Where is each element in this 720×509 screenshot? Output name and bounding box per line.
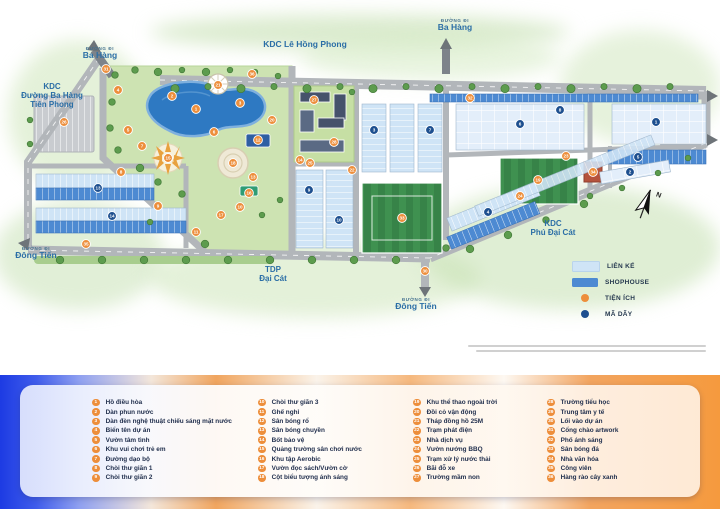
svg-text:34: 34 bbox=[590, 170, 596, 175]
utility-marker: 36 bbox=[248, 70, 257, 79]
amenity-label: Đồi cỏ vận động bbox=[427, 409, 477, 416]
tree-icon bbox=[179, 67, 185, 73]
amenity-item: 21Tháp đồng hồ 25M bbox=[413, 417, 497, 426]
svg-text:N: N bbox=[655, 191, 662, 199]
svg-text:18: 18 bbox=[230, 161, 236, 166]
row-code-marker: 1 bbox=[652, 118, 661, 127]
amenity-column: 1Hồ điều hòa2Dàn phun nước3Dàn đèn nghệ … bbox=[92, 398, 232, 483]
amenity-number-badge: 24 bbox=[413, 446, 421, 454]
amenity-label: Hàng rào cây xanh bbox=[561, 474, 618, 481]
amenity-label: Đường dạo bộ bbox=[106, 456, 150, 463]
row-code-marker: 7 bbox=[426, 126, 435, 135]
amenity-item: 28Trường tiểu học bbox=[547, 398, 618, 407]
amenity-number-badge: 34 bbox=[547, 455, 555, 463]
amenity-number-badge: 6 bbox=[92, 446, 100, 454]
amenity-label: Sân bóng rổ bbox=[272, 418, 309, 425]
amenity-item: 12Sân bóng rổ bbox=[258, 417, 362, 426]
svg-text:9: 9 bbox=[157, 204, 160, 209]
svg-text:16: 16 bbox=[246, 191, 252, 196]
amenity-label: Chòi thư giãn 2 bbox=[106, 474, 153, 481]
amenity-item: 6Khu vui chơi trẻ em bbox=[92, 445, 232, 454]
amenity-number-badge: 31 bbox=[547, 427, 555, 435]
amenity-number-badge: 1 bbox=[92, 399, 100, 407]
utility-marker: 21 bbox=[214, 81, 223, 90]
utility-marker: 2 bbox=[168, 92, 177, 101]
tree-icon bbox=[179, 191, 186, 198]
row-code-marker: 4 bbox=[484, 208, 493, 217]
tree-icon bbox=[633, 85, 641, 93]
svg-text:13: 13 bbox=[250, 175, 256, 180]
svg-text:22: 22 bbox=[349, 168, 355, 173]
tree-icon bbox=[580, 200, 588, 208]
label-ba-hang-top-left: ĐƯỜNG ĐI Ba Hàng bbox=[83, 46, 117, 61]
svg-text:3: 3 bbox=[239, 101, 242, 106]
tree-icon bbox=[403, 84, 409, 90]
amenity-number-badge: 11 bbox=[258, 408, 266, 416]
amenity-number-badge: 21 bbox=[413, 418, 421, 426]
plan-legend: LIÊN KẾ SHOPHOUSE TIỆN ÍCH MÃ DÃY bbox=[572, 258, 712, 322]
label-tdp-dai-cat: TDP Đại Cát bbox=[259, 265, 287, 283]
amenity-item: 10Chòi thư giãn 3 bbox=[258, 398, 362, 407]
amenity-label: Chòi thư giãn 3 bbox=[272, 399, 319, 406]
label-kdc-tien-phong: KDC Đường Ba Hàng Tiên Phong bbox=[21, 82, 83, 110]
amenity-item: 23Nhà dịch vụ bbox=[413, 436, 497, 445]
amenity-item: 30Lối vào dự án bbox=[547, 417, 618, 426]
tree-icon bbox=[98, 256, 106, 264]
tree-icon bbox=[107, 125, 114, 132]
utility-marker: 19 bbox=[534, 176, 543, 185]
tree-icon bbox=[501, 85, 509, 93]
amenity-item: 35Công viên bbox=[547, 464, 618, 473]
amenity-number-badge: 17 bbox=[258, 465, 266, 473]
amenity-item: 17Vườn đọc sách/Vườn cờ bbox=[258, 464, 362, 473]
legend-tien-ich: TIỆN ÍCH bbox=[572, 290, 712, 306]
amenity-item: 2Dàn phun nước bbox=[92, 407, 232, 416]
utility-marker: 3 bbox=[236, 99, 245, 108]
tree-icon bbox=[443, 245, 450, 252]
legend-ma-day: MÃ DÃY bbox=[572, 306, 712, 322]
amenity-item: 15Quảng trường sân chơi nước bbox=[258, 445, 362, 454]
amenity-number-badge: 36 bbox=[547, 474, 555, 482]
amenity-label: Vườn tâm tình bbox=[106, 437, 150, 444]
amenity-item: 5Vườn tâm tình bbox=[92, 436, 232, 445]
svg-text:27: 27 bbox=[311, 98, 317, 103]
amenity-label: Cột biểu tượng ánh sáng bbox=[272, 474, 348, 481]
shophouse-swatch bbox=[572, 278, 598, 287]
tree-icon bbox=[132, 67, 139, 74]
amenity-item: 32Phố ánh sáng bbox=[547, 436, 618, 445]
amenity-number-badge: 18 bbox=[258, 474, 266, 482]
amenity-label: Trung tâm y tế bbox=[561, 409, 605, 416]
row-code-marker: 5 bbox=[634, 153, 643, 162]
svg-text:23: 23 bbox=[563, 154, 569, 159]
svg-text:7: 7 bbox=[429, 128, 432, 133]
amenity-item: 19Khu thể thao ngoài trời bbox=[413, 398, 497, 407]
amenity-item: 29Trung tâm y tế bbox=[547, 407, 618, 416]
tree-icon bbox=[308, 256, 316, 264]
amenity-label: Trạm phát điện bbox=[427, 427, 472, 434]
row-code-marker: 10 bbox=[335, 216, 344, 225]
tree-icon bbox=[201, 240, 209, 248]
label-dong-tien-bottom: ĐƯỜNG ĐI Đông Tiến bbox=[395, 297, 436, 312]
amenity-number-badge: 19 bbox=[413, 399, 421, 407]
amenity-item: 27Trường mầm non bbox=[413, 473, 497, 482]
label-kdc-le-hong-phong: KDC Lê Hồng Phong bbox=[263, 40, 347, 50]
amenity-item: 18Cột biểu tượng ánh sáng bbox=[258, 473, 362, 482]
utility-marker: 5 bbox=[124, 126, 133, 135]
amenity-number-badge: 29 bbox=[547, 408, 555, 416]
tree-icon bbox=[567, 85, 575, 93]
tree-icon bbox=[266, 256, 274, 264]
utility-marker: 22 bbox=[348, 166, 357, 175]
svg-text:6: 6 bbox=[213, 130, 216, 135]
utility-marker: 10 bbox=[236, 203, 245, 212]
amenity-label: Nhà văn hóa bbox=[561, 456, 599, 463]
amenity-label: Trường mầm non bbox=[427, 474, 480, 481]
tree-icon bbox=[655, 170, 661, 176]
park-strip bbox=[34, 256, 274, 264]
amenity-label: Sân bóng đá bbox=[561, 446, 599, 453]
svg-text:26: 26 bbox=[61, 120, 67, 125]
legend-label: LIÊN KẾ bbox=[607, 263, 635, 270]
legend-shophouse: SHOPHOUSE bbox=[572, 274, 712, 290]
bottom-gradient-band: 1Hồ điều hòa2Dàn phun nước3Dàn đèn nghệ … bbox=[0, 375, 720, 509]
amenity-label: Khu vui chơi trẻ em bbox=[106, 446, 166, 453]
amenity-label: Hồ điều hòa bbox=[106, 399, 143, 406]
row-code-marker: 13 bbox=[94, 184, 103, 193]
amenity-number-badge: 27 bbox=[413, 474, 421, 482]
tree-icon bbox=[155, 179, 162, 186]
svg-text:10: 10 bbox=[336, 218, 342, 223]
amenity-item: 3Dàn đèn nghệ thuật chiếu sáng mặt nước bbox=[92, 417, 232, 426]
amenity-number-badge: 35 bbox=[547, 465, 555, 473]
tree-icon bbox=[601, 84, 607, 90]
legend-label: TIỆN ÍCH bbox=[605, 295, 635, 302]
tree-icon bbox=[667, 84, 673, 90]
utility-marker: 12 bbox=[254, 136, 263, 145]
tree-icon bbox=[504, 231, 512, 239]
svg-text:25: 25 bbox=[307, 161, 313, 166]
tree-icon bbox=[535, 84, 541, 90]
svg-text:8: 8 bbox=[120, 170, 123, 175]
amenity-number-badge: 16 bbox=[258, 455, 266, 463]
utility-marker: 1 bbox=[192, 105, 201, 114]
amenity-label: Khu thể thao ngoài trời bbox=[427, 399, 498, 406]
amenity-label: Chòi thư giãn 1 bbox=[106, 465, 153, 472]
svg-text:15: 15 bbox=[165, 156, 171, 161]
tree-icon bbox=[205, 84, 211, 90]
svg-text:33: 33 bbox=[399, 216, 405, 221]
amenity-number-badge: 9 bbox=[92, 474, 100, 482]
row-code-dot-icon bbox=[581, 310, 589, 318]
amenity-item: 8Chòi thư giãn 1 bbox=[92, 464, 232, 473]
tree-icon bbox=[619, 185, 625, 191]
tree-icon bbox=[56, 256, 64, 264]
svg-text:1: 1 bbox=[655, 120, 658, 125]
tree-icon bbox=[224, 256, 232, 264]
lien-ke-swatch bbox=[572, 261, 600, 272]
amenity-label: Nhà dịch vụ bbox=[427, 437, 463, 444]
tree-icon bbox=[587, 193, 593, 199]
utility-marker: 33 bbox=[398, 214, 407, 223]
amenity-item: 16Khu tập Aerobic bbox=[258, 454, 362, 463]
amenity-number-badge: 26 bbox=[413, 465, 421, 473]
tree-icon bbox=[685, 155, 691, 161]
amenity-column: 10Chòi thư giãn 311Ghế nghỉ12Sân bóng rổ… bbox=[258, 398, 362, 483]
amenity-number-badge: 14 bbox=[258, 436, 266, 444]
tree-icon bbox=[271, 84, 277, 90]
tree-icon bbox=[112, 72, 119, 79]
legend-lien-ke: LIÊN KẾ bbox=[572, 258, 712, 274]
amenity-label: Vườn đọc sách/Vườn cờ bbox=[272, 465, 348, 472]
amenity-item: 36Hàng rào cây xanh bbox=[547, 473, 618, 482]
row-code-marker: 14 bbox=[108, 212, 117, 221]
tree-icon bbox=[182, 256, 190, 264]
svg-text:35: 35 bbox=[83, 242, 89, 247]
amenity-label: Cổng chào artwork bbox=[561, 427, 619, 434]
amenity-label: Bãi đỗ xe bbox=[427, 465, 455, 472]
compass-icon: N bbox=[634, 187, 663, 223]
tree-icon bbox=[350, 256, 358, 264]
utility-marker: 25 bbox=[306, 159, 315, 168]
utility-marker: 7 bbox=[138, 142, 147, 151]
amenity-item: 31Cổng chào artwork bbox=[547, 426, 618, 435]
svg-text:20: 20 bbox=[269, 118, 275, 123]
amenity-column: 19Khu thể thao ngoài trời20Đồi cỏ vận độ… bbox=[413, 398, 497, 483]
utility-marker: 30 bbox=[421, 267, 430, 276]
tree-icon bbox=[147, 219, 153, 225]
svg-text:14: 14 bbox=[109, 214, 115, 219]
row-code-marker: 2 bbox=[626, 168, 635, 177]
svg-text:12: 12 bbox=[255, 138, 261, 143]
amenity-number-badge: 2 bbox=[92, 408, 100, 416]
amenity-label: Sân bóng chuyền bbox=[272, 427, 325, 434]
utility-marker: 4 bbox=[114, 86, 123, 95]
amenity-column: 28Trường tiểu học29Trung tâm y tế30Lối v… bbox=[547, 398, 618, 483]
master-plan-map: N 31362142312026561271518813169101711142… bbox=[0, 0, 720, 375]
amenity-number-badge: 22 bbox=[413, 427, 421, 435]
row-code-marker: 8 bbox=[556, 106, 565, 115]
tree-icon bbox=[337, 84, 343, 90]
utility-marker: 31 bbox=[102, 65, 111, 74]
row-code-marker: 3 bbox=[370, 126, 379, 135]
tree-icon bbox=[136, 164, 144, 172]
svg-text:24: 24 bbox=[517, 194, 523, 199]
amenity-label: Trường tiểu học bbox=[561, 399, 610, 406]
utility-marker: 26 bbox=[60, 118, 69, 127]
amenity-item: 4Biển tên dự án bbox=[92, 426, 232, 435]
utility-marker: 14 bbox=[296, 156, 305, 165]
tree-icon bbox=[115, 147, 122, 154]
row-code-marker: 6 bbox=[516, 120, 525, 129]
utility-marker: 11 bbox=[192, 228, 201, 237]
tree-icon bbox=[435, 85, 443, 93]
svg-text:19: 19 bbox=[535, 178, 541, 183]
amenity-item: 25Trạm xử lý nước thải bbox=[413, 454, 497, 463]
utility-marker: 34 bbox=[589, 168, 598, 177]
svg-text:36: 36 bbox=[249, 72, 255, 77]
amenity-number-badge: 32 bbox=[547, 436, 555, 444]
amenity-item: 22Trạm phát điện bbox=[413, 426, 497, 435]
amenity-item: 1Hồ điều hòa bbox=[92, 398, 232, 407]
legend-label: SHOPHOUSE bbox=[605, 279, 649, 286]
tree-icon bbox=[277, 197, 283, 203]
utility-marker: 24 bbox=[516, 192, 525, 201]
tree-icon bbox=[109, 99, 116, 106]
tree-icon bbox=[466, 245, 474, 253]
label-kdc-phu-dai-cat: KDC Phú Đại Cát bbox=[531, 219, 576, 237]
amenity-item: 24Vườn nướng BBQ bbox=[413, 445, 497, 454]
utility-marker: 13 bbox=[249, 173, 258, 182]
amenity-item: 33Sân bóng đá bbox=[547, 445, 618, 454]
amenity-number-badge: 25 bbox=[413, 455, 421, 463]
housing-rows-center bbox=[296, 170, 353, 248]
amenity-number-badge: 23 bbox=[413, 436, 421, 444]
amenity-number-badge: 5 bbox=[92, 436, 100, 444]
utility-marker: 15 bbox=[164, 154, 173, 163]
masterplan-page: N 31362142312026561271518813169101711142… bbox=[0, 0, 720, 509]
utility-dot-icon bbox=[581, 294, 589, 302]
svg-text:5: 5 bbox=[127, 128, 130, 133]
utility-marker: 8 bbox=[117, 168, 126, 177]
amenity-number-badge: 8 bbox=[92, 465, 100, 473]
utility-marker: 20 bbox=[268, 116, 277, 125]
svg-text:6: 6 bbox=[519, 122, 522, 127]
tree-icon bbox=[392, 256, 400, 264]
svg-text:3: 3 bbox=[373, 128, 376, 133]
amenity-label: Khu tập Aerobic bbox=[272, 456, 321, 463]
tree-icon bbox=[154, 68, 162, 76]
svg-text:13: 13 bbox=[95, 186, 101, 191]
amenity-number-badge: 20 bbox=[413, 408, 421, 416]
amenity-label: Quảng trường sân chơi nước bbox=[272, 446, 362, 453]
amenity-label: Lối vào dự án bbox=[561, 418, 603, 425]
amenity-legend-panel: 1Hồ điều hòa2Dàn phun nước3Dàn đèn nghệ … bbox=[20, 385, 700, 497]
amenity-label: Công viên bbox=[561, 465, 592, 472]
amenity-item: 20Đồi cỏ vận động bbox=[413, 407, 497, 416]
utility-marker: 32 bbox=[466, 94, 475, 103]
tree-icon bbox=[27, 117, 33, 123]
tree-icon bbox=[469, 84, 475, 90]
svg-text:32: 32 bbox=[467, 96, 473, 101]
svg-text:30: 30 bbox=[422, 269, 428, 274]
svg-text:28: 28 bbox=[331, 140, 337, 145]
disclaimer-text-placeholder bbox=[476, 350, 706, 352]
utility-marker: 35 bbox=[82, 240, 91, 249]
svg-text:31: 31 bbox=[103, 67, 109, 72]
legend-label: MÃ DÃY bbox=[605, 311, 632, 318]
amenity-number-badge: 10 bbox=[258, 399, 266, 407]
amenity-number-badge: 13 bbox=[258, 427, 266, 435]
amenity-item: 26Bãi đỗ xe bbox=[413, 464, 497, 473]
tree-icon bbox=[237, 85, 245, 93]
tree-icon bbox=[259, 212, 265, 218]
amenity-label: Trạm xử lý nước thải bbox=[427, 456, 491, 463]
utility-marker: 16 bbox=[245, 189, 254, 198]
amenity-number-badge: 33 bbox=[547, 446, 555, 454]
amenity-number-badge: 3 bbox=[92, 418, 100, 426]
amenity-number-badge: 7 bbox=[92, 455, 100, 463]
tree-icon bbox=[202, 68, 210, 76]
svg-text:7: 7 bbox=[141, 144, 144, 149]
tree-icon bbox=[349, 89, 355, 95]
svg-text:11: 11 bbox=[194, 230, 199, 235]
amenity-item: 14Bốt bảo vệ bbox=[258, 436, 362, 445]
amenity-number-badge: 15 bbox=[258, 446, 266, 454]
amenity-item: 9Chòi thư giãn 2 bbox=[92, 473, 232, 482]
svg-text:8: 8 bbox=[559, 108, 562, 113]
amenity-item: 13Sân bóng chuyền bbox=[258, 426, 362, 435]
svg-text:4: 4 bbox=[487, 210, 490, 215]
utility-marker: 18 bbox=[229, 159, 238, 168]
tree-icon bbox=[275, 73, 281, 79]
utility-marker: 27 bbox=[310, 96, 319, 105]
label-dong-tien-left: ĐƯỜNG ĐI Đông Tiến bbox=[15, 246, 56, 261]
amenity-label: Phố ánh sáng bbox=[561, 437, 603, 444]
svg-text:4: 4 bbox=[117, 88, 120, 93]
utility-marker: 28 bbox=[330, 138, 339, 147]
amenity-label: Ghế nghỉ bbox=[272, 409, 300, 416]
amenity-number-badge: 28 bbox=[547, 399, 555, 407]
svg-text:21: 21 bbox=[215, 83, 221, 88]
amenity-label: Dàn đèn nghệ thuật chiếu sáng mặt nước bbox=[106, 418, 232, 425]
label-ba-hang-top-right: ĐƯỜNG ĐI Ba Hàng bbox=[438, 18, 472, 33]
utility-marker: 6 bbox=[210, 128, 219, 137]
amenity-number-badge: 30 bbox=[547, 418, 555, 426]
svg-text:5: 5 bbox=[637, 155, 640, 160]
svg-text:1: 1 bbox=[195, 107, 198, 112]
amenity-label: Dàn phun nước bbox=[106, 409, 154, 416]
utility-marker: 23 bbox=[562, 152, 571, 161]
tree-icon bbox=[303, 85, 311, 93]
svg-text:14: 14 bbox=[297, 158, 303, 163]
amenity-number-badge: 12 bbox=[258, 418, 266, 426]
school-campus bbox=[294, 86, 354, 162]
disclaimer-text-placeholder bbox=[468, 345, 706, 347]
svg-text:2: 2 bbox=[629, 170, 632, 175]
amenity-number-badge: 4 bbox=[92, 427, 100, 435]
utility-marker: 9 bbox=[154, 202, 163, 211]
amenity-label: Biển tên dự án bbox=[106, 427, 151, 434]
tree-icon bbox=[369, 85, 377, 93]
utility-marker: 17 bbox=[217, 211, 226, 220]
amenity-label: Vườn nướng BBQ bbox=[427, 446, 483, 453]
amenity-item: 7Đường dạo bộ bbox=[92, 454, 232, 463]
amenity-item: 11Ghế nghỉ bbox=[258, 407, 362, 416]
tree-icon bbox=[27, 141, 33, 147]
tree-icon bbox=[227, 67, 233, 73]
amenity-label: Bốt bảo vệ bbox=[272, 437, 305, 444]
svg-text:17: 17 bbox=[218, 213, 224, 218]
amenity-label: Tháp đồng hồ 25M bbox=[427, 418, 483, 425]
amenity-item: 34Nhà văn hóa bbox=[547, 454, 618, 463]
svg-text:9: 9 bbox=[308, 188, 311, 193]
svg-text:10: 10 bbox=[237, 205, 243, 210]
row-code-marker: 9 bbox=[305, 186, 314, 195]
svg-text:2: 2 bbox=[171, 94, 174, 99]
tree-icon bbox=[140, 256, 148, 264]
